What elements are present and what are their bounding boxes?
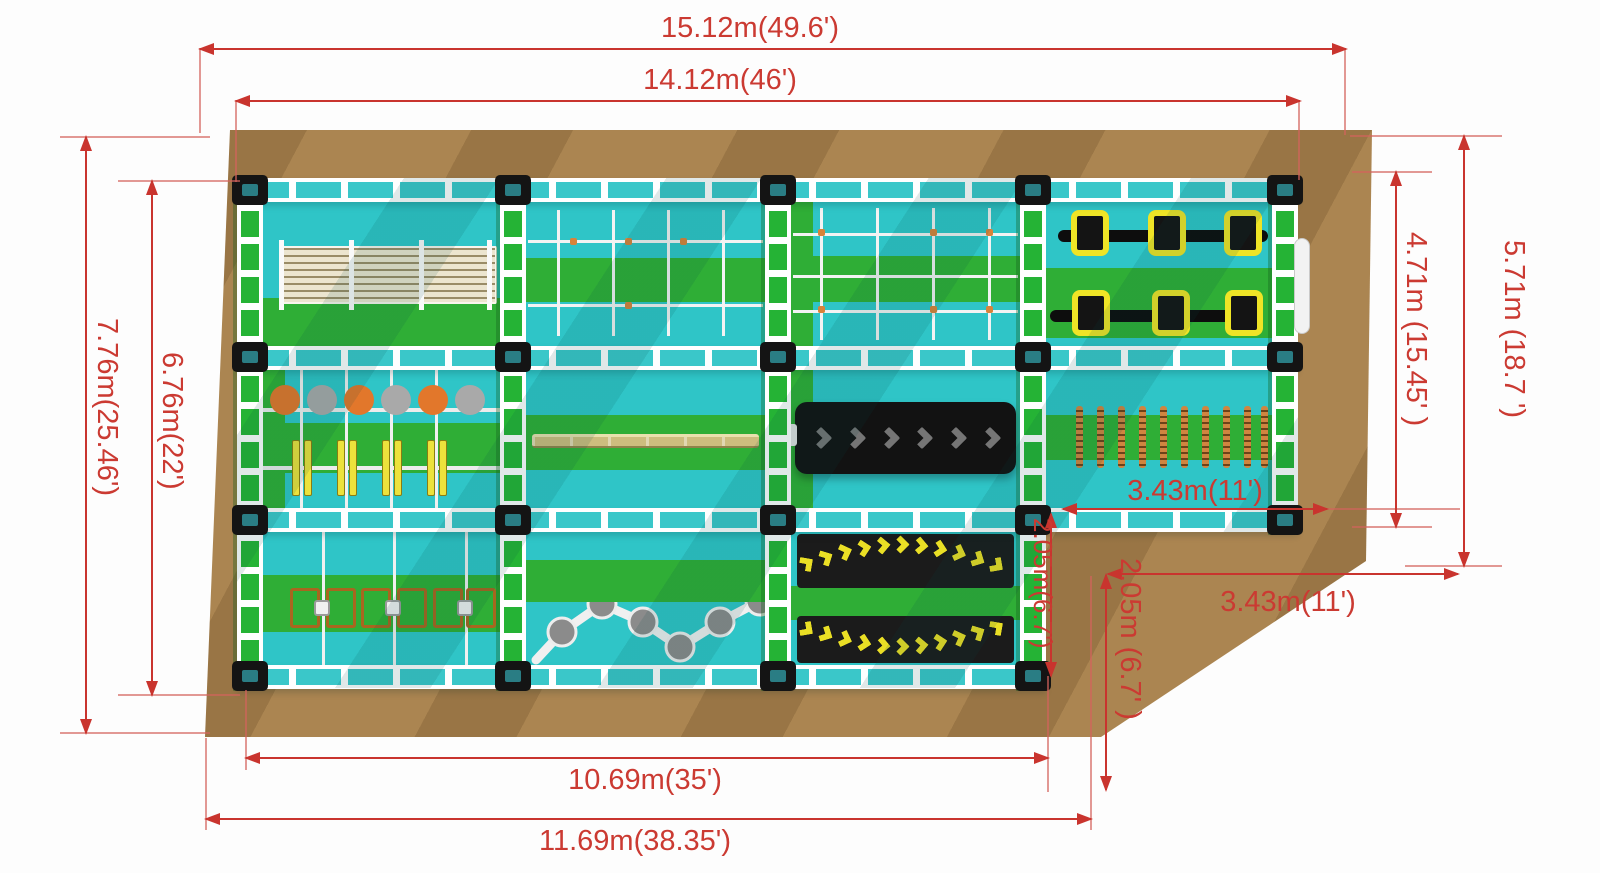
bar-line bbox=[528, 304, 763, 307]
extension-line bbox=[235, 100, 237, 182]
net-line bbox=[932, 208, 935, 340]
spinner-frame bbox=[397, 588, 427, 628]
zone-monkey-bars bbox=[526, 202, 765, 346]
chevron-right-icon bbox=[872, 536, 890, 554]
chevron-right-icon bbox=[910, 636, 928, 654]
chevron-right-icon bbox=[835, 544, 852, 561]
dim-line-left-inner bbox=[151, 181, 153, 695]
spinner-hub bbox=[314, 600, 330, 616]
dim-label-right-inner: 4.71m (15.45' ) bbox=[1399, 232, 1432, 426]
dim-label-notch-height-inner: 2.05m(6.7') bbox=[1027, 518, 1058, 649]
corner-post bbox=[760, 505, 796, 535]
corner-post bbox=[232, 505, 268, 535]
roller-slats bbox=[281, 246, 497, 304]
frame-rail-horizontal bbox=[237, 665, 1046, 689]
chevron-right-icon bbox=[968, 625, 984, 641]
dim-line-notch-height-outer bbox=[1105, 575, 1107, 790]
dim-line-top-outer bbox=[200, 48, 1346, 50]
zone-chevron-lanes bbox=[791, 532, 1020, 665]
zone-balance-beam bbox=[526, 368, 765, 508]
net-line bbox=[876, 208, 879, 340]
chevron-right-icon bbox=[810, 427, 833, 450]
rope-ladder bbox=[1139, 406, 1146, 468]
extension-line bbox=[1405, 565, 1502, 567]
bar-line bbox=[528, 240, 763, 243]
slat-divider bbox=[487, 240, 492, 310]
corner-post bbox=[760, 661, 796, 691]
chevron-right-icon bbox=[945, 427, 968, 450]
corner-post bbox=[760, 175, 796, 205]
rope-ladder bbox=[1223, 406, 1230, 468]
dim-label-notch-height-outer: 2.05m (6.7' ) bbox=[1113, 558, 1146, 720]
bar-line bbox=[722, 210, 725, 336]
foam-stick bbox=[439, 440, 447, 496]
frame-rail-vertical bbox=[237, 178, 263, 688]
dim-label-left-inner: 6.76m(22') bbox=[155, 352, 188, 490]
corner-post bbox=[1267, 342, 1303, 372]
slide-tube bbox=[1294, 238, 1310, 334]
spinner-hub bbox=[457, 600, 473, 616]
extension-line bbox=[1327, 508, 1460, 510]
dim-label-right-outer: 5.71m (18.7 ') bbox=[1497, 240, 1530, 418]
net-line bbox=[988, 208, 991, 340]
chevron-right-icon bbox=[988, 621, 1003, 636]
slat-divider bbox=[419, 240, 424, 310]
rope-ladder bbox=[1181, 406, 1188, 468]
net-knot bbox=[818, 306, 825, 313]
hang-square bbox=[1225, 290, 1263, 336]
frame-pole bbox=[393, 532, 396, 665]
bar-line bbox=[667, 210, 670, 336]
net-knot bbox=[818, 229, 825, 236]
zone-hanging-squares bbox=[1046, 202, 1272, 346]
punch-bag-orange bbox=[270, 385, 300, 415]
net-knot bbox=[930, 229, 937, 236]
grip-marker bbox=[625, 238, 632, 245]
extension-line bbox=[118, 180, 240, 182]
hang-square bbox=[1224, 210, 1262, 256]
punch-bag-orange bbox=[344, 385, 374, 415]
net-knot bbox=[930, 306, 937, 313]
rope-ladder bbox=[1244, 406, 1251, 468]
corner-post bbox=[495, 342, 531, 372]
dim-line-right-outer bbox=[1463, 136, 1465, 566]
foam-stick bbox=[382, 440, 390, 496]
extension-line bbox=[1298, 100, 1300, 180]
conveyor-handle bbox=[791, 424, 797, 446]
foam-stick bbox=[337, 440, 345, 496]
net-knot bbox=[986, 306, 993, 313]
corner-post bbox=[232, 661, 268, 691]
chevron-right-icon bbox=[988, 557, 1003, 572]
punch-bag-gray bbox=[381, 385, 411, 415]
net-line bbox=[820, 208, 823, 340]
chevron-lane-bottom bbox=[797, 616, 1014, 663]
chevron-right-icon bbox=[979, 427, 1002, 450]
chevron-right-icon bbox=[816, 625, 832, 641]
dim-line-notch-width-bottom bbox=[1108, 573, 1458, 575]
chevron-right-icon bbox=[891, 535, 909, 553]
zone-stepping-stones bbox=[526, 532, 765, 665]
chevron-right-icon bbox=[968, 550, 984, 566]
net-line bbox=[793, 310, 1018, 313]
corner-post bbox=[1015, 342, 1051, 372]
chevron-right-icon bbox=[854, 540, 872, 558]
dim-label-top-inner: 14.12m(46') bbox=[530, 64, 910, 97]
extension-line bbox=[1350, 135, 1502, 137]
foam-stick bbox=[292, 440, 300, 496]
zone-roller-slide bbox=[263, 202, 500, 346]
extension-line bbox=[1344, 48, 1346, 135]
chevron-right-icon bbox=[816, 550, 832, 566]
chevron-right-icon bbox=[930, 634, 948, 652]
dim-label-notch-width-top: 3.43m(11') bbox=[1075, 475, 1315, 508]
chevron-right-icon bbox=[798, 621, 813, 636]
dim-line-top-inner bbox=[236, 100, 1300, 102]
net-knot bbox=[986, 229, 993, 236]
dim-label-notch-width-bottom: 3.43m(11') bbox=[1168, 586, 1408, 619]
rope-ladder bbox=[1118, 406, 1125, 468]
net-line bbox=[793, 275, 1018, 278]
rope-ladder bbox=[1076, 406, 1083, 468]
extension-line bbox=[1047, 676, 1049, 792]
foam-stick bbox=[349, 440, 357, 496]
rope-ladder bbox=[1202, 406, 1209, 468]
floor-green-band bbox=[791, 256, 1020, 302]
corner-post bbox=[495, 661, 531, 691]
dim-label-left-outer: 7.76m(25.46') bbox=[90, 318, 123, 496]
chevron-right-icon bbox=[949, 630, 966, 647]
hang-square bbox=[1072, 290, 1110, 336]
dim-label-top-outer: 15.12m(49.6') bbox=[560, 12, 940, 45]
foam-stick bbox=[427, 440, 435, 496]
chevron-right-icon bbox=[877, 427, 900, 450]
extension-line bbox=[199, 48, 201, 133]
chevron-right-icon bbox=[891, 637, 909, 655]
corner-post bbox=[495, 175, 531, 205]
dim-line-left-outer bbox=[85, 137, 87, 733]
corner-post bbox=[495, 505, 531, 535]
net-line bbox=[793, 233, 1018, 236]
floor-green-band bbox=[526, 560, 765, 602]
floor-green-band bbox=[526, 258, 765, 302]
dim-line-right-inner bbox=[1395, 172, 1397, 527]
chevron-right-icon bbox=[854, 634, 872, 652]
dim-line-bottom-outer bbox=[206, 818, 1091, 820]
extension-line bbox=[118, 694, 240, 696]
chevron-lane-top bbox=[797, 534, 1014, 588]
conveyor-belt bbox=[795, 402, 1016, 474]
frame-rail-vertical bbox=[500, 178, 526, 688]
bar-line bbox=[612, 210, 615, 336]
grip-marker bbox=[625, 302, 632, 309]
dim-line-notch-width-top bbox=[1063, 508, 1327, 510]
zone-spinner-frames bbox=[263, 532, 500, 665]
punch-bag-gray bbox=[307, 385, 337, 415]
frame-rail-vertical bbox=[765, 178, 791, 688]
balance-beam bbox=[532, 434, 759, 448]
foam-stick bbox=[394, 440, 402, 496]
dim-label-bottom-outer: 11.69m(38.35') bbox=[460, 825, 810, 858]
corner-post bbox=[1015, 175, 1051, 205]
rope-ladder bbox=[1160, 406, 1167, 468]
dim-label-bottom-inner: 10.69m(35') bbox=[490, 764, 800, 797]
rope-ladder bbox=[1097, 406, 1104, 468]
frame-pole bbox=[300, 368, 303, 508]
chevron-right-icon bbox=[798, 557, 813, 572]
spinner-frame bbox=[326, 588, 356, 628]
chevron-right-icon bbox=[872, 636, 890, 654]
floor-green-band bbox=[791, 586, 1020, 620]
playground-floor-plan: 15.12m(49.6') 14.12m(46') 7.76m(25.46') … bbox=[0, 0, 1600, 873]
chevron-right-icon bbox=[843, 427, 866, 450]
chevron-right-icon bbox=[835, 630, 852, 647]
chevron-right-icon bbox=[930, 540, 948, 558]
grip-marker bbox=[680, 238, 687, 245]
punch-bag-orange bbox=[418, 385, 448, 415]
grip-marker bbox=[570, 238, 577, 245]
floor-green-strip bbox=[791, 202, 813, 346]
zone-punch-bags bbox=[263, 368, 500, 508]
hang-square bbox=[1152, 290, 1190, 336]
extension-line bbox=[1090, 576, 1092, 830]
chevron-right-icon bbox=[949, 544, 966, 561]
punch-bag-gray bbox=[455, 385, 485, 415]
slat-divider bbox=[279, 240, 284, 310]
floor-green-band bbox=[263, 298, 500, 346]
hang-square bbox=[1148, 210, 1186, 256]
dim-line-bottom-inner bbox=[246, 757, 1048, 759]
hang-square bbox=[1071, 210, 1109, 256]
foam-stick bbox=[304, 440, 312, 496]
corner-post bbox=[232, 342, 268, 372]
spinner-hub bbox=[385, 600, 401, 616]
slat-divider bbox=[349, 240, 354, 310]
zone-climb-net bbox=[791, 202, 1020, 346]
zone-conveyor bbox=[791, 368, 1020, 508]
corner-post bbox=[760, 342, 796, 372]
rope-ladder bbox=[1261, 406, 1268, 468]
frame-pole bbox=[322, 532, 325, 665]
chevron-right-icon bbox=[911, 427, 934, 450]
chevron-right-icon bbox=[910, 536, 928, 554]
bar-line bbox=[557, 210, 560, 336]
